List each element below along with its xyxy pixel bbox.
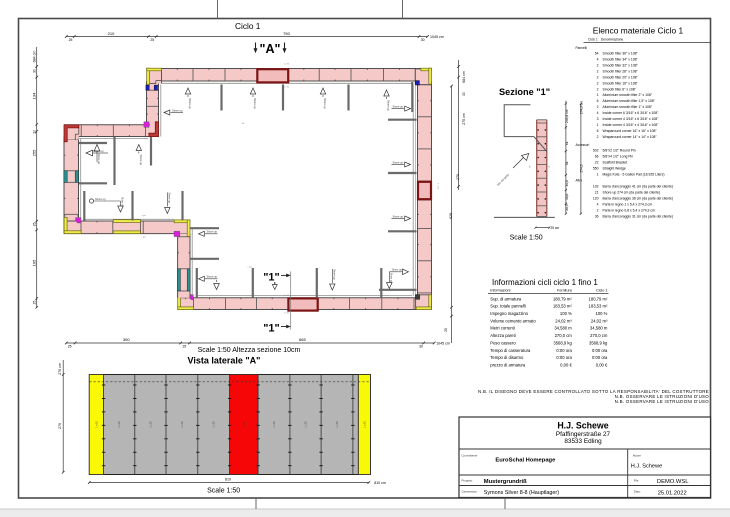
svg-text:134: 134 [31, 92, 36, 99]
svg-text:Shore up: Shore up [253, 98, 257, 109]
svg-text:2: 2 [597, 81, 599, 85]
svg-text:Informazioni: Informazioni [490, 289, 510, 293]
svg-text:34,580 m: 34,580 m [590, 326, 608, 331]
svg-text:6: 6 [597, 99, 599, 103]
svg-text:Informazioni cicli ciclo 1 fi: Informazioni cicli ciclo 1 fino 1 [492, 278, 598, 287]
svg-text:Shore up: Shore up [387, 100, 391, 111]
svg-text:3568,9 kg: 3568,9 kg [553, 340, 572, 345]
svg-text:2: 2 [597, 87, 599, 91]
svg-text:Shore up: Shore up [121, 197, 124, 207]
svg-text:Shore up: Shore up [207, 230, 218, 234]
svg-text:1 x 91: 1 x 91 [273, 421, 276, 428]
svg-text:Sup. di armatura: Sup. di armatura [490, 296, 522, 301]
svg-text:550: 550 [593, 166, 599, 170]
svg-text:Shore up: Shore up [97, 154, 101, 165]
svg-text:Volume cemento armato: Volume cemento armato [490, 318, 536, 323]
svg-text:prezzo di armatura: prezzo di armatura [490, 362, 526, 367]
svg-text:180,79 m²: 180,79 m² [553, 296, 572, 301]
svg-text:Smooth filler 6" x 108": Smooth filler 6" x 108" [603, 87, 637, 91]
svg-text:0,00 €: 0,00 € [596, 362, 608, 367]
svg-text:665: 665 [299, 337, 306, 342]
svg-text:Casseratura: Casseratura [462, 490, 478, 494]
svg-text:Symons Silver 8-8 (Hauptlager): Symons Silver 8-8 (Hauptlager) [484, 490, 559, 496]
svg-text:36: 36 [595, 214, 599, 218]
svg-text:6: 6 [597, 129, 599, 133]
svg-text:30: 30 [419, 345, 423, 349]
svg-text:2: 2 [597, 63, 599, 67]
svg-text:120: 120 [593, 197, 599, 201]
svg-text:54: 54 [595, 52, 599, 56]
svg-text:2: 2 [597, 208, 599, 212]
svg-text:25: 25 [68, 345, 72, 349]
svg-text:25: 25 [32, 222, 36, 226]
svg-text:1: 1 [597, 172, 599, 176]
svg-text:4: 4 [597, 111, 599, 115]
svg-text:4: 4 [597, 202, 599, 206]
svg-text:Shore up: Shore up [393, 160, 404, 164]
svg-text:1 x 91: 1 x 91 [284, 295, 291, 297]
svg-text:Tempo di disarmo: Tempo di disarmo [490, 355, 524, 360]
svg-text:Aluminium smooth filler 2" x 1: Aluminium smooth filler 2" x 108" [603, 93, 653, 97]
svg-text:2: 2 [597, 105, 599, 109]
svg-text:H.J. Schewe: H.J. Schewe [631, 464, 662, 470]
svg-text:270 cm: 270 cm [462, 113, 466, 125]
svg-text:Shore up: Shore up [139, 155, 143, 166]
svg-text:Altro: Altro [576, 179, 583, 183]
svg-text:Vista laterale "A": Vista laterale "A" [188, 356, 261, 366]
svg-text:100 %: 100 % [560, 311, 572, 316]
svg-text:Barra d'ancoraggio 36 cm (da p: Barra d'ancoraggio 36 cm (da parte del c… [603, 197, 674, 201]
svg-text:Smooth filler 34" x 108": Smooth filler 34" x 108" [603, 57, 639, 61]
svg-text:25: 25 [444, 328, 448, 332]
svg-text:30: 30 [462, 92, 466, 96]
svg-text:2: 2 [597, 69, 599, 73]
svg-text:20: 20 [32, 130, 36, 134]
svg-text:Altezza pareti: Altezza pareti [490, 333, 515, 338]
svg-text:30: 30 [32, 69, 36, 73]
svg-text:Shore up: Shore up [172, 108, 183, 112]
svg-text:274,3 cm: 274,3 cm [580, 101, 584, 114]
svg-text:Parte in legno 0,8 x 5,4 x 274: Parte in legno 0,8 x 5,4 x 274,3 cm [603, 208, 656, 212]
svg-text:Scale 1:50 Altezza sezione 1: Scale 1:50 Altezza sezione 10cm [198, 347, 301, 354]
svg-text:24,02 m³: 24,02 m³ [591, 318, 608, 323]
svg-text:H.J. Schewe: H.J. Schewe [557, 420, 608, 430]
svg-text:Ciclo 1: Ciclo 1 [596, 289, 607, 293]
svg-text:Shore up 274 cm (da parte del: Shore up 274 cm (da parte del cliente) [603, 191, 661, 195]
svg-text:Denominazione: Denominazione [601, 38, 623, 42]
svg-text:1 x 91: 1 x 91 [181, 421, 184, 428]
svg-text:195: 195 [31, 259, 36, 266]
svg-text:1 x 91: 1 x 91 [96, 421, 99, 428]
svg-text:Shore up: Shore up [393, 214, 404, 218]
svg-text:Inside corner 6 3/16" x 6 3/16: Inside corner 6 3/16" x 6 3/16" x 108" [603, 111, 660, 115]
svg-text:N.B. OSSERVARE LE ISTRUZIONI D: N.B. OSSERVARE LE ISTRUZIONI D'USO [615, 399, 710, 404]
svg-text:1: 1 [597, 93, 599, 97]
svg-text:Wraparound corner 16" x 16" x: Wraparound corner 16" x 16" x 108" [603, 129, 658, 133]
svg-text:Peso cassero: Peso cassero [490, 340, 516, 345]
svg-text:102: 102 [593, 185, 599, 189]
svg-text:3568,9 kg: 3568,9 kg [589, 340, 608, 345]
svg-text:Smooth filler 28" x 108": Smooth filler 28" x 108" [603, 69, 639, 73]
svg-text:25: 25 [32, 301, 36, 305]
svg-text:+ girt: + girt [141, 236, 146, 239]
svg-text:1 x 91: 1 x 91 [305, 421, 308, 428]
svg-text:Shore up: Shore up [392, 269, 402, 272]
svg-text:684 cm: 684 cm [32, 51, 36, 63]
svg-text:750: 750 [283, 31, 290, 36]
svg-text:270 cm: 270 cm [58, 363, 62, 375]
svg-text:0:00 ora: 0:00 ora [592, 355, 608, 360]
svg-text:810 cm: 810 cm [374, 481, 386, 485]
svg-text:+ girt: + girt [247, 266, 252, 269]
svg-text:Scale 1:50: Scale 1:50 [207, 488, 240, 495]
svg-text:Shore up: Shore up [207, 275, 218, 279]
svg-text:270: 270 [456, 174, 460, 180]
svg-text:61: 61 [565, 141, 569, 145]
svg-text:Shore up: Shore up [93, 149, 104, 153]
svg-text:0:00 ora: 0:00 ora [556, 348, 572, 353]
svg-text:1045 cm: 1045 cm [430, 35, 444, 39]
svg-text:25: 25 [183, 345, 187, 349]
svg-text:5/8"x2 1/2" Round Pin: 5/8"x2 1/2" Round Pin [603, 149, 636, 153]
svg-text:Committente: Committente [462, 454, 478, 458]
svg-text:3: 3 [597, 117, 599, 121]
svg-text:Impegno magazzino: Impegno magazzino [490, 311, 528, 316]
svg-text:Mustergrundriß: Mustergrundriß [484, 479, 527, 485]
svg-text:1 x 91: 1 x 91 [284, 313, 291, 315]
svg-text:+ girt: + girt [141, 214, 146, 217]
svg-text:4: 4 [597, 57, 599, 61]
svg-text:DEMO.WSL: DEMO.WSL [657, 479, 689, 485]
svg-text:Data:: Data: [634, 490, 641, 494]
svg-text:1 x 91: 1 x 91 [363, 421, 366, 428]
svg-text:"1": "1" [263, 323, 280, 335]
svg-text:Magic Kote - 5 Gallon Pail (18: Magic Kote - 5 Gallon Pail (18.925 Liter… [603, 172, 665, 176]
svg-text:Shore up: Shore up [188, 98, 192, 109]
svg-text:File:: File: [634, 479, 640, 483]
svg-text:Progetto:: Progetto: [462, 479, 474, 483]
svg-text:Pfaffingerstraße 27: Pfaffingerstraße 27 [556, 431, 611, 438]
svg-text:Straight Wedge: Straight Wedge [603, 166, 626, 170]
svg-text:Shore up: Shore up [333, 269, 337, 280]
svg-text:270,0 cm: 270,0 cm [590, 333, 608, 338]
svg-text:1 x 91: 1 x 91 [149, 421, 152, 428]
svg-text:25: 25 [150, 38, 154, 42]
svg-text:Wraparound corner 14" x 14" x: Wraparound corner 14" x 14" x 108" [603, 135, 658, 139]
svg-text:"1": "1" [263, 271, 280, 283]
svg-text:Elenco materiale Ciclo 1: Elenco materiale Ciclo 1 [593, 26, 684, 36]
svg-text:1045 cm: 1045 cm [436, 342, 450, 346]
svg-text:EuroSchal Homepage: EuroSchal Homepage [495, 458, 556, 464]
svg-text:502: 502 [593, 149, 599, 153]
svg-text:0:00 ora: 0:00 ora [592, 348, 608, 353]
svg-text:1 x 91: 1 x 91 [437, 183, 439, 190]
svg-text:300: 300 [123, 337, 130, 342]
svg-text:34,580 m: 34,580 m [554, 326, 572, 331]
svg-text:100 %: 100 % [596, 311, 608, 316]
svg-text:0:00 ora: 0:00 ora [556, 355, 572, 360]
svg-text:Shore up: Shore up [95, 197, 106, 201]
svg-text:Smooth filler 36" x 108": Smooth filler 36" x 108" [603, 52, 639, 56]
svg-text:Tempo di casseratura: Tempo di casseratura [490, 348, 531, 353]
svg-text:1 x 91: 1 x 91 [118, 421, 121, 428]
svg-text:Sezione "1": Sezione "1" [499, 87, 550, 97]
svg-text:Autore: Autore [633, 454, 642, 458]
svg-text:183,53 m²: 183,53 m² [589, 304, 608, 309]
svg-text:Barra d'ancoraggio 41 cm (da p: Barra d'ancoraggio 41 cm (da parte del c… [603, 185, 674, 189]
svg-text:Shore up: Shore up [390, 273, 393, 283]
svg-text:Inside corner 4 3/16" x 6 3/16: Inside corner 4 3/16" x 6 3/16" x 108" [603, 117, 660, 121]
svg-text:Metri correnti: Metri correnti [490, 326, 515, 331]
svg-text:61: 61 [565, 161, 569, 165]
svg-text:274,3: 274,3 [580, 164, 584, 172]
svg-text:Shore up: Shore up [323, 98, 327, 109]
svg-text:180,79 m²: 180,79 m² [589, 296, 608, 301]
svg-text:2: 2 [597, 135, 599, 139]
svg-text:Aluminium smooth filler 1" x 1: Aluminium smooth filler 1" x 108" [603, 105, 653, 109]
svg-text:Scaffold Bracket: Scaffold Bracket [603, 161, 628, 165]
svg-text:22: 22 [595, 161, 599, 165]
svg-text:21: 21 [595, 191, 599, 195]
svg-text:Pannelli: Pannelli [576, 46, 588, 50]
svg-text:1 x 91: 1 x 91 [243, 421, 246, 428]
svg-text:30: 30 [421, 38, 425, 42]
svg-text:66: 66 [595, 155, 599, 159]
svg-text:5/8"x4 1/2" Long Pin: 5/8"x4 1/2" Long Pin [603, 155, 634, 159]
svg-text:1 x 91: 1 x 91 [336, 421, 339, 428]
svg-text:243,8 cm: 243,8 cm [565, 109, 569, 122]
svg-text:183,53 m²: 183,53 m² [553, 304, 572, 309]
svg-text:Accessori: Accessori [576, 143, 590, 147]
svg-text:"A": "A" [260, 42, 281, 56]
svg-text:40,6: 40,6 [565, 180, 569, 186]
svg-text:Shore up: Shore up [168, 193, 172, 204]
svg-text:83533 Edling: 83533 Edling [564, 438, 602, 445]
svg-text:Barra d'ancoraggio 31 cm (da p: Barra d'ancoraggio 31 cm (da parte del c… [603, 214, 674, 218]
svg-text:Scale 1:50: Scale 1:50 [510, 235, 543, 242]
svg-text:40,6: 40,6 [565, 193, 569, 199]
svg-text:210: 210 [108, 31, 115, 36]
svg-text:Ciclo 1: Ciclo 1 [235, 21, 261, 31]
svg-text:684 cm: 684 cm [462, 71, 466, 83]
svg-text:20,3: 20,3 [565, 204, 569, 210]
svg-text:1 x 91: 1 x 91 [284, 63, 291, 65]
svg-text:1: 1 [597, 123, 599, 127]
svg-text:25 cm: 25 cm [551, 226, 560, 230]
svg-text:270,0 cm: 270,0 cm [555, 333, 573, 338]
svg-text:255: 255 [31, 149, 36, 156]
svg-text:Parte in legno 1 x 5,4 x 274,3: Parte in legno 1 x 5,4 x 274,3 cm [603, 202, 653, 206]
svg-text:629: 629 [449, 213, 453, 219]
svg-text:25: 25 [69, 38, 73, 42]
svg-text:Inside corner 4 3/16" x 4 3/16: Inside corner 4 3/16" x 4 3/16" x 108" [603, 123, 660, 127]
svg-text:Smooth filler 16" x 108": Smooth filler 16" x 108" [603, 81, 639, 85]
svg-text:1 x 91: 1 x 91 [284, 87, 291, 89]
svg-text:Smooth filler 20" x 108": Smooth filler 20" x 108" [603, 75, 639, 79]
svg-text:810: 810 [225, 478, 231, 482]
svg-text:270: 270 [58, 423, 62, 429]
svg-text:Smooth filler 32" x 108": Smooth filler 32" x 108" [603, 63, 639, 67]
svg-text:Sup. totale pannelli: Sup. totale pannelli [490, 304, 526, 309]
svg-text:Aluminium smooth filler 1,5" x: Aluminium smooth filler 1,5" x 108" [603, 99, 656, 103]
svg-text:0,00 €: 0,00 € [560, 362, 572, 367]
svg-text:25.01.2022: 25.01.2022 [658, 491, 687, 497]
svg-text:Ciclo 1: Ciclo 1 [588, 38, 598, 42]
svg-text:Shore up: Shore up [393, 104, 404, 108]
svg-text:Fornitura: Fornitura [557, 289, 573, 293]
svg-text:1 x 91: 1 x 91 [213, 421, 216, 428]
svg-text:2: 2 [597, 75, 599, 79]
svg-text:24,02 m³: 24,02 m³ [555, 318, 572, 323]
